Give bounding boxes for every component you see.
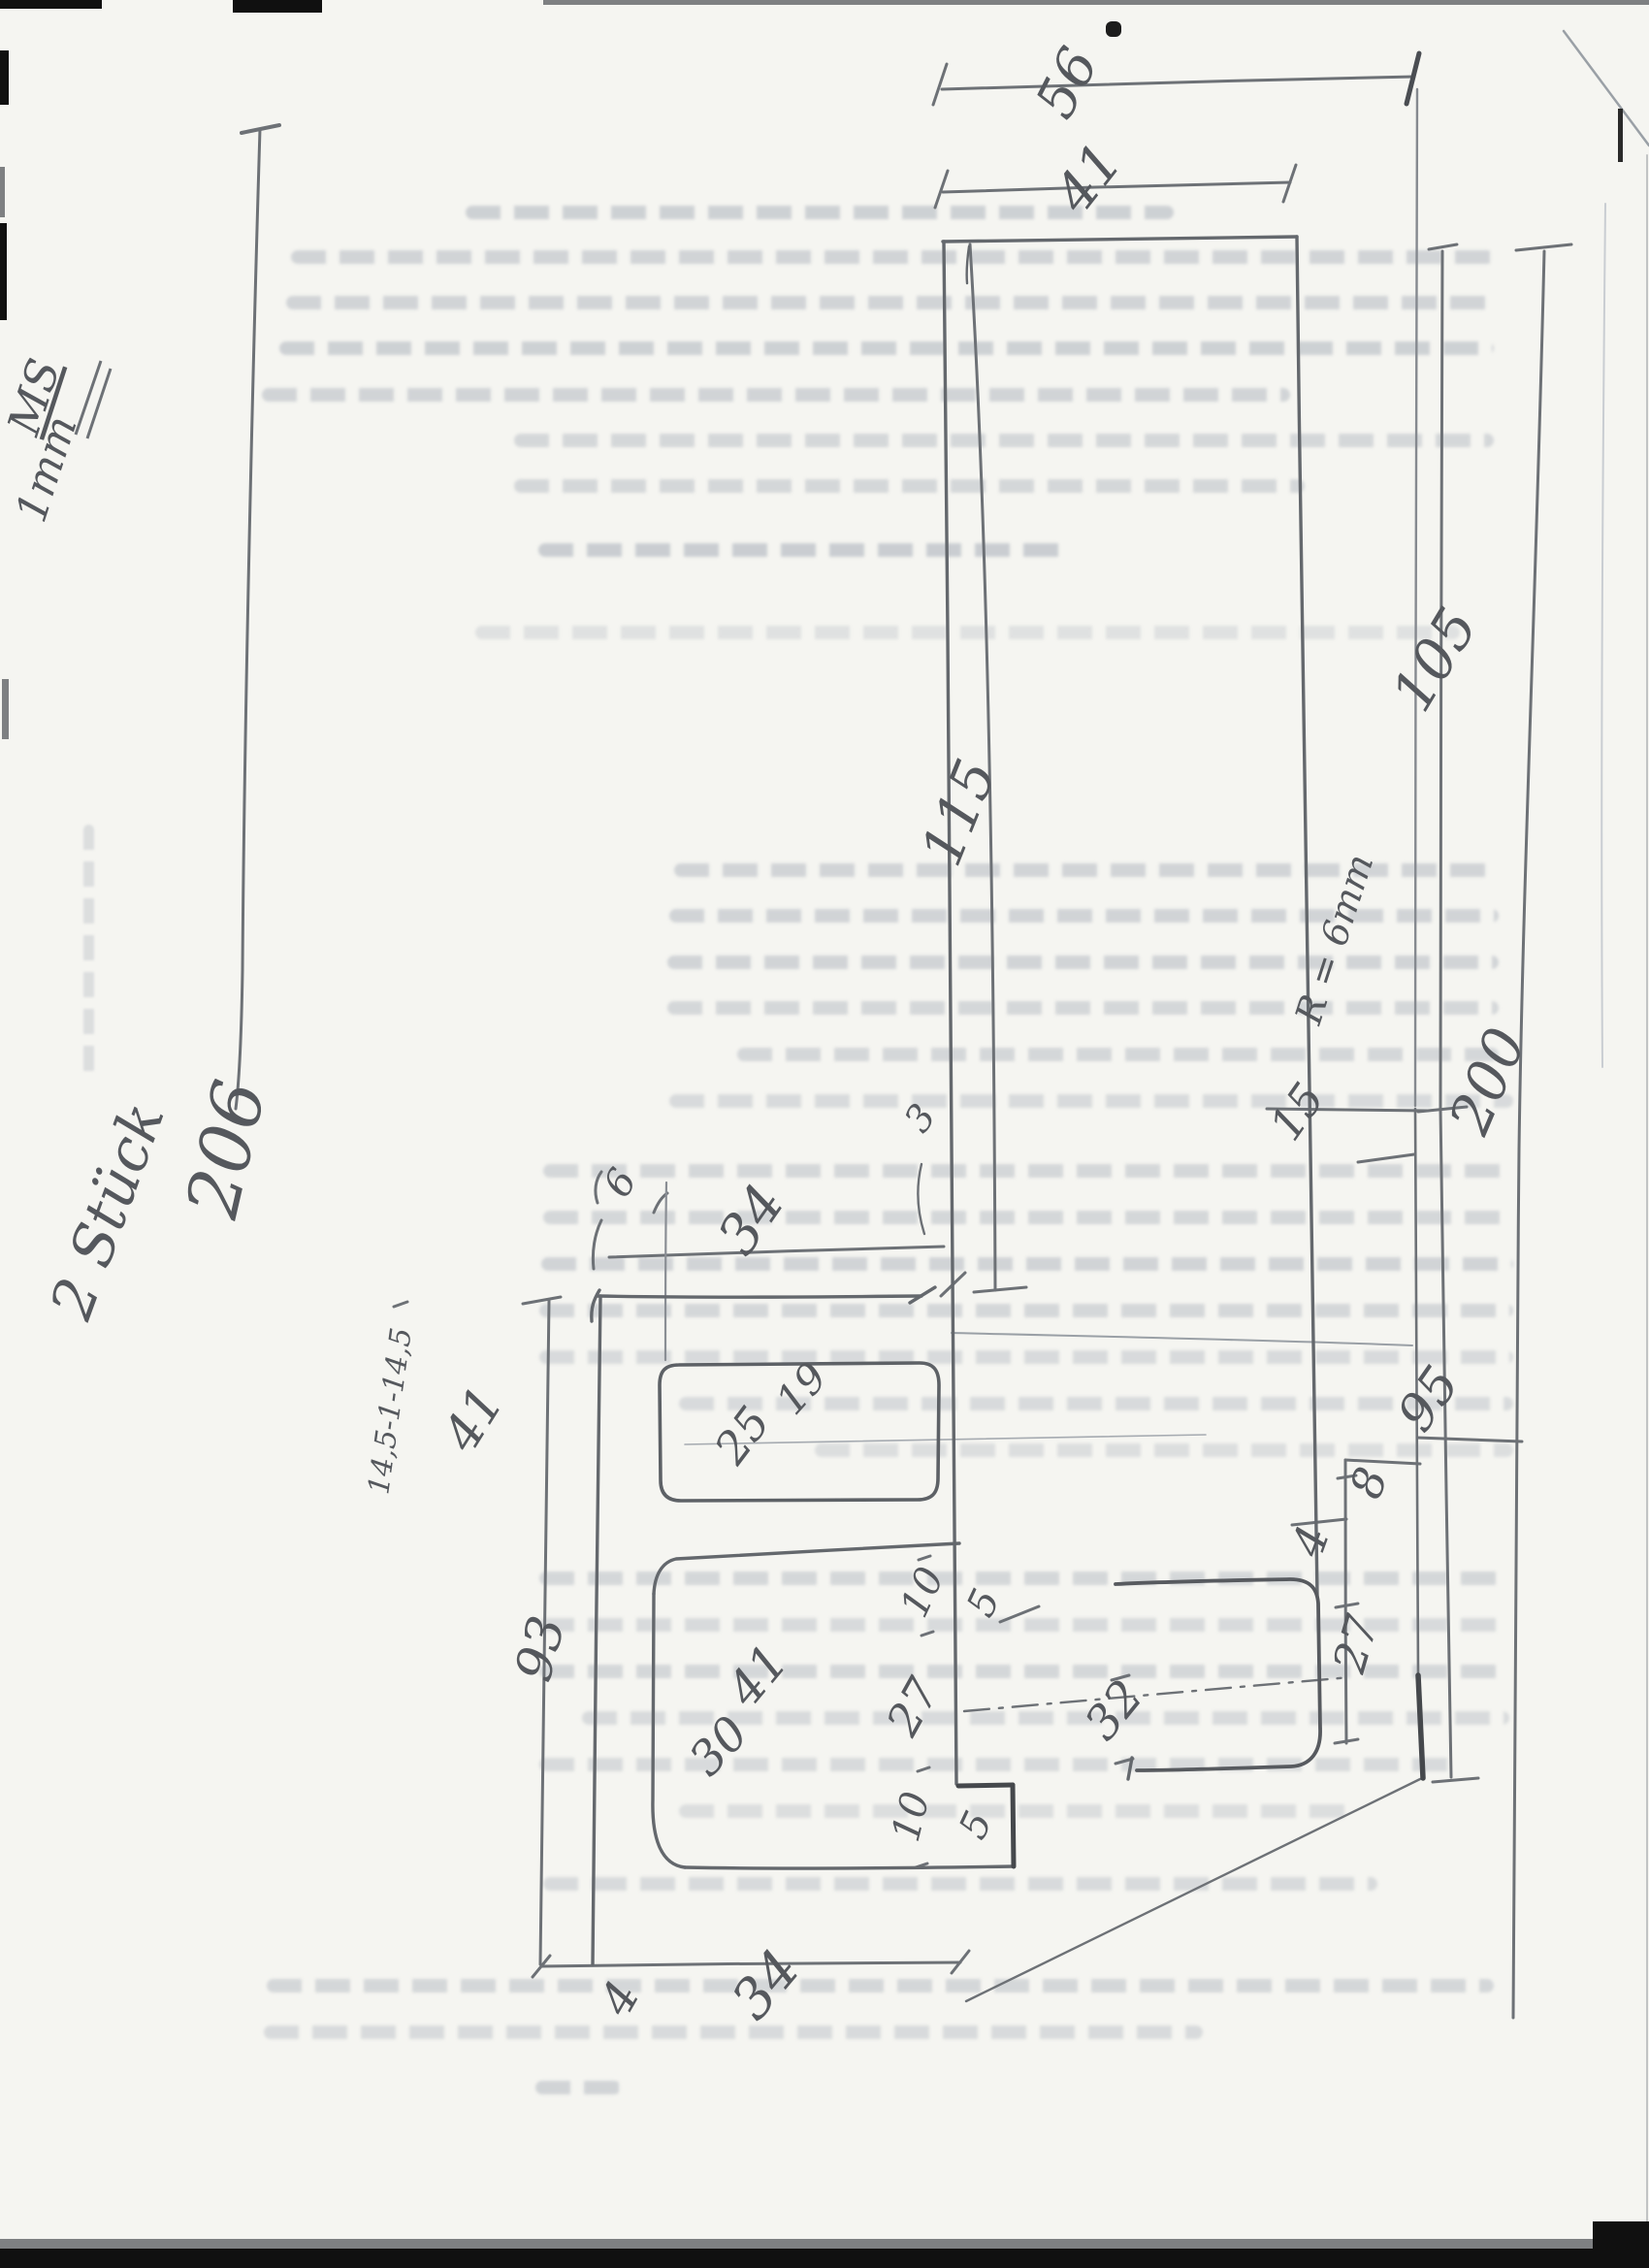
label-dim-32: 32 [1075, 1670, 1154, 1751]
label-dim-41-lower: 41 [716, 1634, 799, 1718]
label-dim-15: 15 [1259, 1073, 1335, 1150]
label-dim-115: 115 [908, 750, 1010, 874]
label-dim-206: 206 [171, 1073, 283, 1226]
label-dim-4-bottom: 4 [589, 1972, 651, 2025]
scan-edge-left-4 [2, 679, 9, 739]
scan-edge-bottom [0, 2249, 1649, 2268]
corner-crease [1564, 31, 1649, 146]
scan-artifacts [1106, 21, 1649, 2231]
scan-edge-left-3 [0, 223, 7, 320]
label-dim-95: 95 [1387, 1356, 1471, 1442]
label-dim-8: 8 [1340, 1461, 1399, 1506]
scan-edge-left-1 [0, 50, 9, 105]
label-chain: 14,5-1-14,5 [362, 1326, 419, 1497]
scan-edge-top-left [0, 0, 102, 9]
scan-edge-left-2 [0, 167, 5, 217]
label-dim-93: 93 [504, 1610, 577, 1687]
label-dim-3: 3 [895, 1096, 944, 1140]
label-dim-56: 56 [1023, 38, 1111, 128]
paper-crease [1601, 204, 1605, 1067]
label-dim-4-right: 4 [1280, 1519, 1340, 1565]
label-dim-6: 6 [595, 1161, 646, 1205]
label-quantity: 2 Stück [37, 1094, 178, 1329]
label-dim-5-step: 5 [951, 1804, 1001, 1846]
label-dim-10-lower: 10 [884, 1788, 939, 1847]
scan-edge-bottom-right [1593, 2221, 1649, 2268]
label-dim-105: 105 [1378, 597, 1490, 723]
edge-mark [1618, 109, 1623, 162]
label-dim-27-left: 27 [876, 1669, 950, 1745]
scan-edge-top [233, 0, 322, 13]
label-dim-27-right: 27 [1322, 1608, 1389, 1679]
label-dim-30: 30 [679, 1706, 760, 1787]
scanned-sketch-page: 2 Stück 1mm MS 206 56 41 115 105 95 200 … [0, 0, 1649, 2268]
label-dim-5-upper: 5 [958, 1582, 1009, 1624]
scan-edge-top-thin [543, 0, 1649, 5]
label-dim-25: 25 [703, 1397, 780, 1474]
label-dim-10-upper: 10 [892, 1561, 954, 1625]
label-radius: R = 6mm [1286, 849, 1381, 1030]
label-dim-200: 200 [1436, 1019, 1538, 1144]
hand-drawn-sketch: 2 Stück 1mm MS 206 56 41 115 105 95 200 … [0, 0, 1649, 2268]
label-dim-41-mid: 41 [432, 1377, 515, 1463]
label-dim-34-bottom: 34 [720, 1938, 813, 2031]
label-dim-41-top: 41 [1042, 132, 1135, 226]
ink-blob [1106, 21, 1121, 37]
